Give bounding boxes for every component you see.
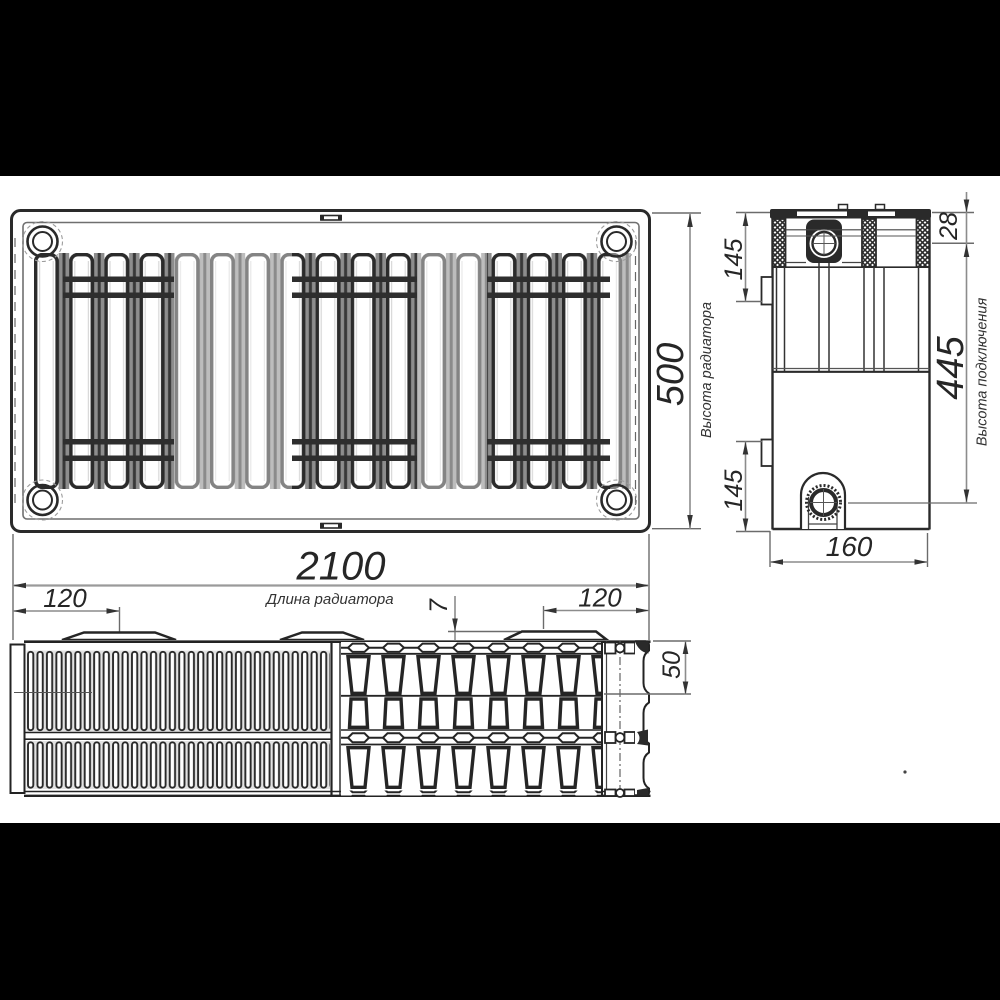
svg-text:28: 28: [935, 212, 963, 241]
svg-text:Длина радиатора: Длина радиатора: [264, 591, 393, 608]
svg-text:445: 445: [930, 335, 972, 399]
svg-text:Высота радиатора: Высота радиатора: [699, 302, 715, 438]
svg-text:120: 120: [43, 583, 87, 613]
svg-text:145: 145: [720, 470, 748, 512]
svg-text:50: 50: [658, 651, 686, 679]
svg-text:Высота подключения: Высота подключения: [975, 298, 991, 447]
svg-text:500: 500: [650, 343, 692, 406]
svg-text:2100: 2100: [296, 545, 386, 589]
svg-text:120: 120: [578, 583, 622, 613]
svg-text:145: 145: [720, 239, 748, 281]
svg-text:160: 160: [826, 531, 873, 562]
svg-text:7: 7: [425, 598, 453, 613]
